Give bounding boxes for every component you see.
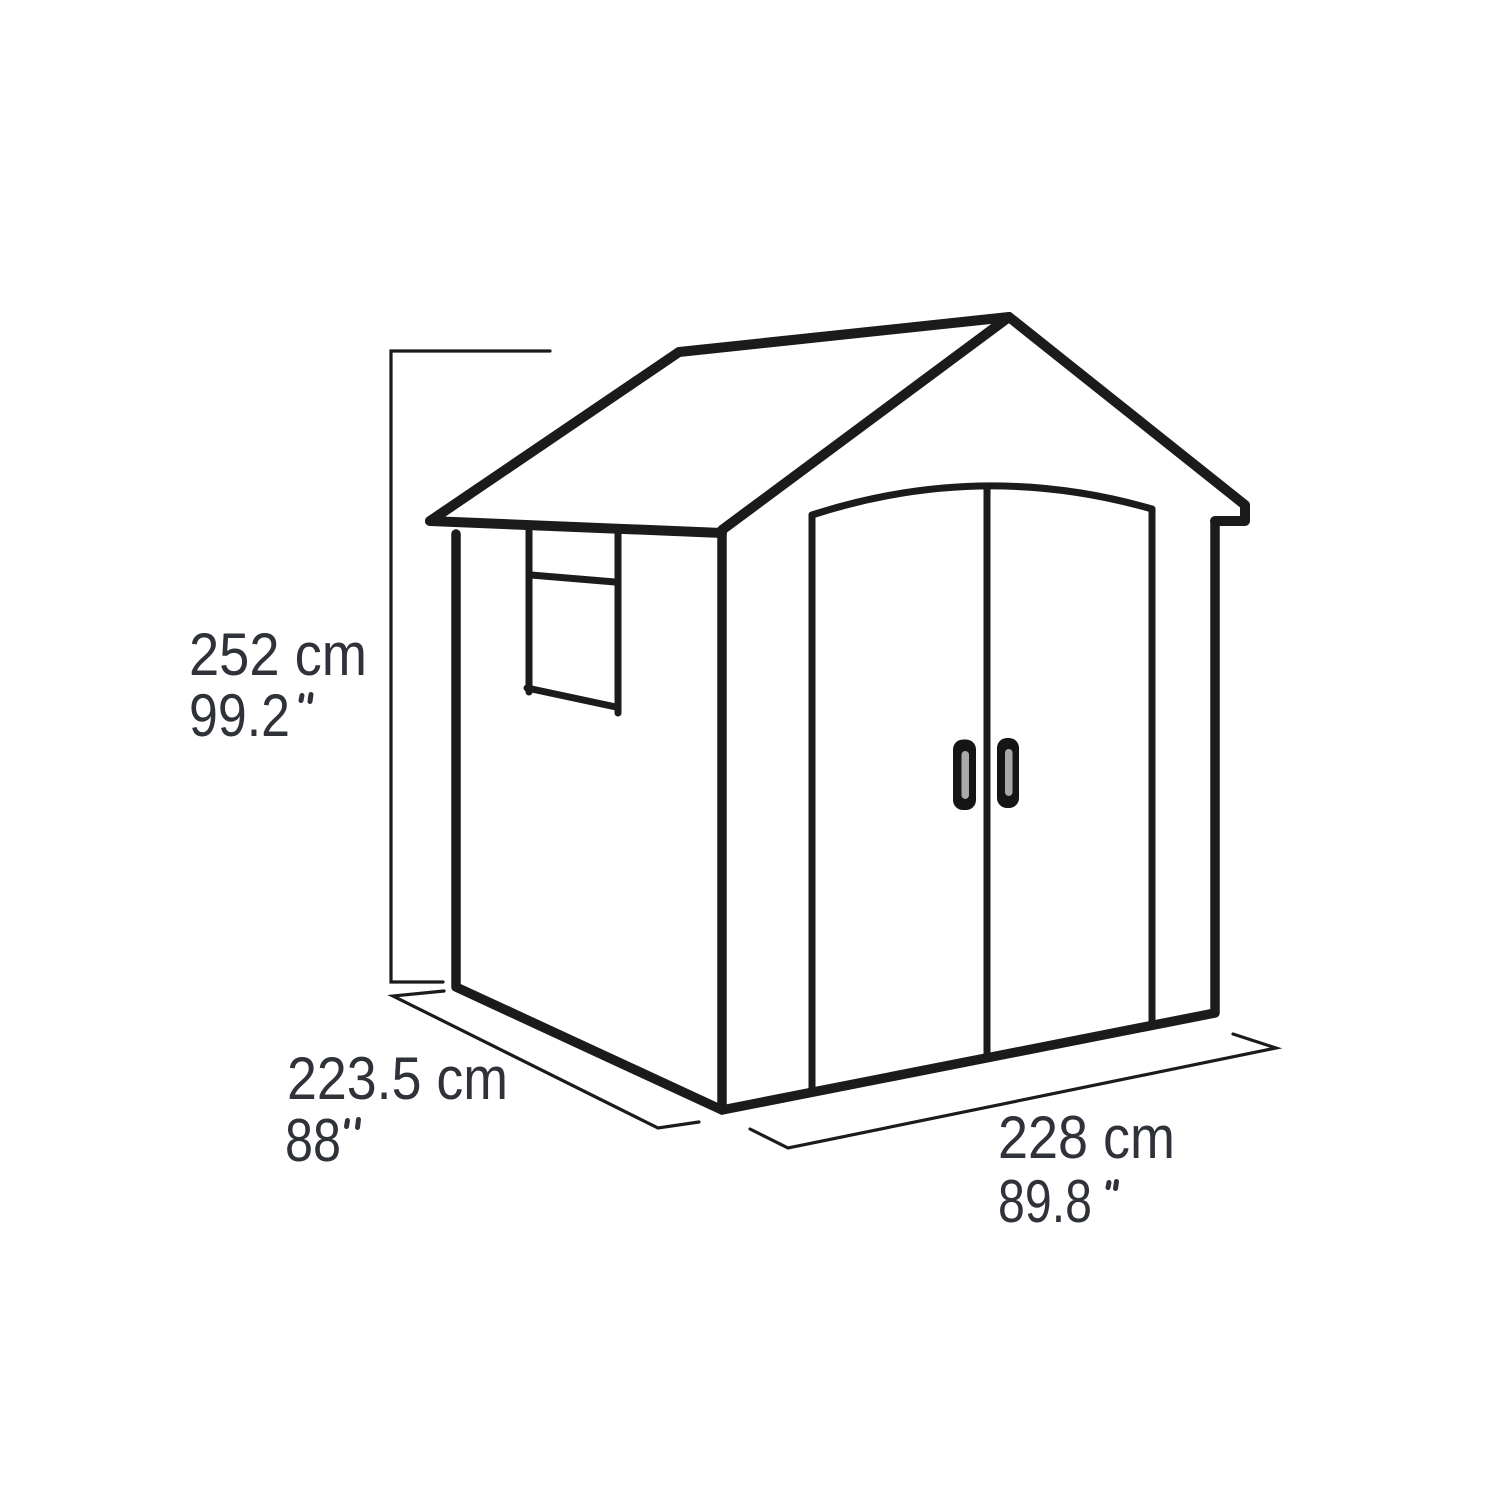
svg-text:88: 88 xyxy=(285,1107,341,1174)
svg-text:89.8: 89.8 xyxy=(998,1168,1092,1235)
svg-text:99.2: 99.2 xyxy=(189,682,290,749)
svg-text:252 cm: 252 cm xyxy=(189,621,367,688)
svg-text:228 cm: 228 cm xyxy=(998,1104,1175,1171)
svg-text:223.5 cm: 223.5 cm xyxy=(287,1045,508,1112)
